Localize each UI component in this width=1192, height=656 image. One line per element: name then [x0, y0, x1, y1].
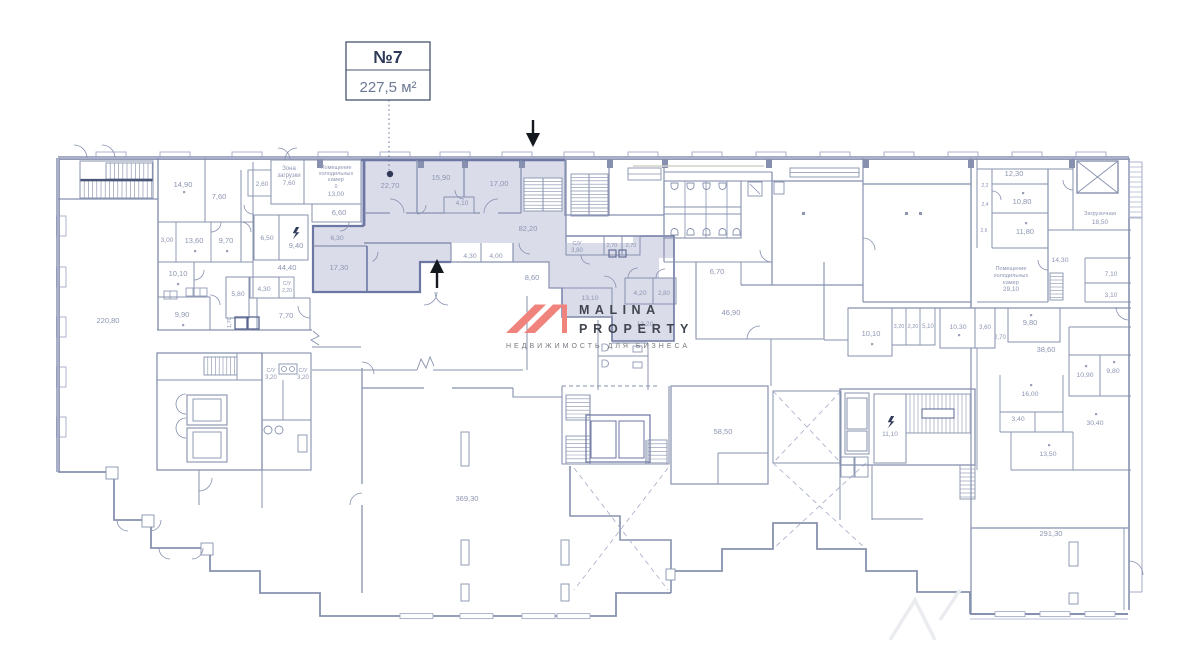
svg-text:НЕДВИЖИМОСТЬ ДЛЯ БИЗНЕСА: НЕДВИЖИМОСТЬ ДЛЯ БИЗНЕСА [506, 343, 690, 350]
svg-text:6,60: 6,60 [332, 208, 347, 217]
svg-text:82,20: 82,20 [519, 224, 538, 233]
svg-text:58,50: 58,50 [714, 427, 733, 436]
svg-text:9,70: 9,70 [219, 236, 234, 245]
svg-text:16,00: 16,00 [1021, 391, 1038, 398]
svg-text:291,30: 291,30 [1040, 529, 1063, 538]
svg-text:0: 0 [335, 184, 338, 190]
svg-text:4,20: 4,20 [633, 290, 646, 297]
svg-text:2,20: 2,20 [908, 324, 919, 330]
svg-text:2,4: 2,4 [982, 202, 989, 208]
svg-text:2,70: 2,70 [626, 243, 637, 249]
svg-text:холодильных: холодильных [994, 273, 1029, 279]
svg-text:загрузки: загрузки [277, 173, 300, 179]
svg-text:4,00: 4,00 [489, 253, 502, 260]
svg-text:220,80: 220,80 [97, 316, 120, 325]
svg-text:2,80: 2,80 [658, 291, 670, 297]
svg-text:3,00: 3,00 [161, 237, 174, 244]
svg-text:3,40: 3,40 [1011, 416, 1024, 423]
svg-text:9,80: 9,80 [1023, 318, 1038, 327]
svg-text:13,60: 13,60 [185, 236, 204, 245]
svg-text:10,10: 10,10 [862, 329, 881, 338]
svg-text:15,90: 15,90 [432, 173, 451, 182]
svg-text:С/У: С/У [299, 368, 309, 374]
svg-text:9,90: 9,90 [175, 310, 190, 319]
svg-text:17,30: 17,30 [330, 263, 349, 272]
svg-text:7,60: 7,60 [283, 180, 296, 187]
svg-text:2,6: 2,6 [981, 228, 988, 234]
svg-text:Зона: Зона [282, 166, 296, 172]
svg-text:10,90: 10,90 [1076, 372, 1093, 379]
svg-text:369,30: 369,30 [456, 494, 479, 503]
svg-text:С/У: С/У [267, 368, 277, 374]
svg-text:3,20: 3,20 [297, 375, 309, 381]
svg-text:12,30: 12,30 [1005, 169, 1024, 178]
svg-text:13,50: 13,50 [1039, 451, 1056, 458]
svg-text:10,30: 10,30 [949, 324, 966, 331]
svg-text:9,80: 9,80 [1106, 368, 1119, 375]
svg-text:1,70: 1,70 [227, 317, 233, 328]
svg-text:10,80: 10,80 [1013, 197, 1032, 206]
svg-text:18,50: 18,50 [1092, 219, 1109, 226]
svg-text:4,10: 4,10 [456, 200, 469, 207]
svg-text:MALINA: MALINA [579, 303, 661, 317]
svg-text:11,80: 11,80 [1016, 227, 1034, 236]
svg-text:2,20: 2,20 [282, 288, 292, 294]
svg-text:Загрузочная: Загрузочная [1084, 211, 1116, 217]
svg-text:13,00: 13,00 [328, 191, 345, 198]
svg-text:4,30: 4,30 [463, 253, 476, 260]
svg-text:30,40: 30,40 [1086, 420, 1103, 427]
svg-text:2,60: 2,60 [256, 181, 269, 188]
svg-text:3,80: 3,80 [571, 248, 583, 254]
svg-text:5,80: 5,80 [231, 291, 244, 298]
svg-text:29,10: 29,10 [1003, 286, 1020, 293]
svg-text:9,40: 9,40 [289, 241, 304, 250]
svg-text:13,10: 13,10 [581, 295, 598, 302]
svg-text:38,60: 38,60 [1037, 345, 1056, 354]
svg-text:С/У: С/У [573, 241, 583, 247]
svg-text:6,30: 6,30 [330, 235, 343, 242]
svg-text:6,50: 6,50 [260, 235, 273, 242]
svg-text:6,70: 6,70 [710, 267, 725, 276]
svg-text:3,10: 3,10 [1105, 292, 1118, 299]
svg-text:2,70: 2,70 [994, 335, 1006, 341]
svg-text:14,30: 14,30 [1051, 257, 1068, 264]
svg-text:Помещение: Помещение [995, 266, 1026, 272]
svg-text:№7: №7 [373, 47, 402, 67]
svg-text:3,20: 3,20 [894, 324, 905, 330]
svg-text:14,90: 14,90 [174, 180, 193, 189]
svg-text:3,60: 3,60 [979, 325, 991, 331]
svg-text:камер: камер [328, 177, 344, 183]
svg-text:7,10: 7,10 [1105, 271, 1118, 278]
svg-text:227,5 м²: 227,5 м² [359, 79, 416, 96]
svg-text:PROPERTY: PROPERTY [579, 322, 694, 336]
svg-text:С/У: С/У [283, 281, 292, 287]
svg-text:11,10: 11,10 [882, 431, 898, 438]
svg-text:3,20: 3,20 [265, 375, 277, 381]
svg-text:17,00: 17,00 [490, 179, 509, 188]
svg-text:8,60: 8,60 [525, 273, 540, 282]
svg-text:46,90: 46,90 [722, 308, 741, 317]
svg-text:5,10: 5,10 [922, 324, 934, 330]
svg-text:7,70: 7,70 [279, 311, 294, 320]
svg-text:22,70: 22,70 [381, 181, 400, 190]
svg-text:44,40: 44,40 [278, 263, 297, 272]
svg-text:4,30: 4,30 [257, 286, 270, 293]
svg-text:2,70: 2,70 [607, 243, 618, 249]
svg-text:2,2: 2,2 [982, 183, 989, 189]
svg-text:10,10: 10,10 [169, 269, 188, 278]
svg-text:7,60: 7,60 [212, 192, 227, 201]
